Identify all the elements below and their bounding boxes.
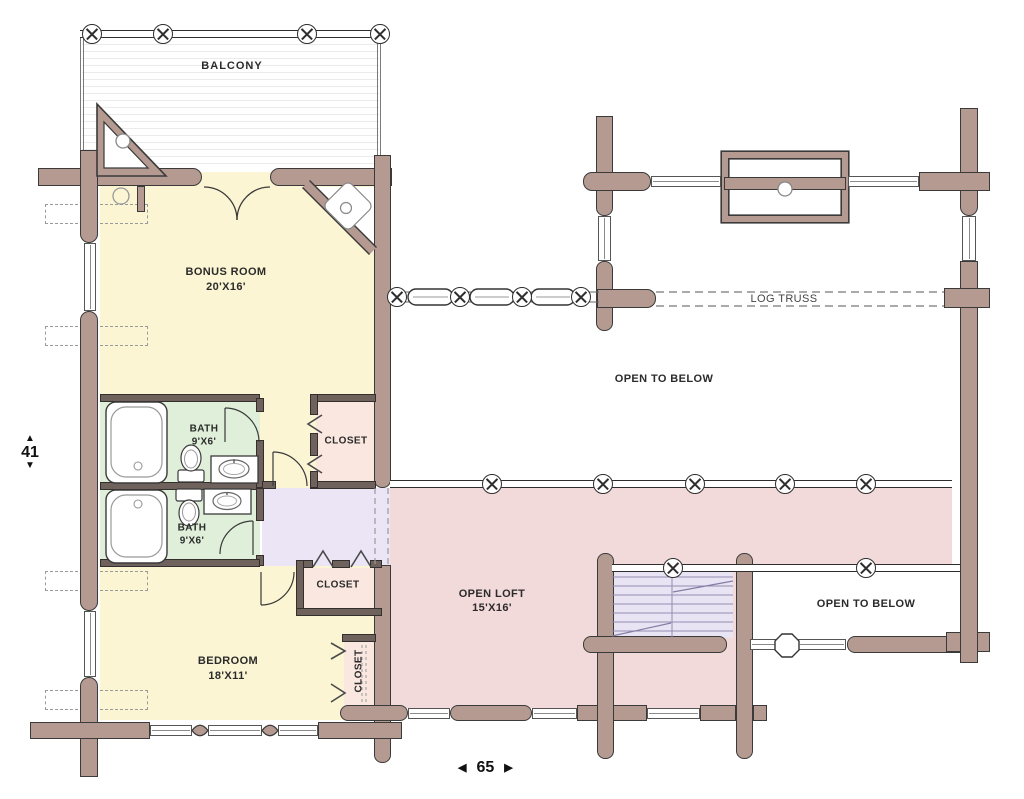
railing-post-icon [593, 474, 613, 494]
balcony-railing [80, 30, 382, 38]
railing-post-icon [775, 474, 795, 494]
wall-closet-upper-bottom [310, 481, 376, 489]
log-wall-loft-bottom [340, 705, 408, 721]
room-label-bath-upper: BATH [190, 424, 219, 435]
log-wall-right [960, 261, 978, 663]
railing-post-icon [370, 24, 390, 44]
log-wall-wing-right [374, 155, 391, 488]
wall-closet-lower-front [370, 560, 382, 568]
railing-post-icon [153, 24, 173, 44]
wall-hall-strip [262, 481, 276, 489]
wall-closet-upper-left [310, 394, 318, 415]
room-label-balcony: BALCONY [201, 60, 262, 72]
log-beam-top [919, 172, 990, 191]
room-label-bonus: BONUS ROOM [186, 266, 267, 278]
window [208, 725, 262, 736]
log-wall-bottom [30, 722, 150, 739]
room-label-open-loft: OPEN LOFT [459, 588, 526, 600]
room-size-bath-lower: 9'X6' [180, 536, 205, 547]
railing-post-icon [450, 287, 470, 307]
log-cross-truss-right [944, 288, 990, 308]
log-wall-loft-bottom [450, 705, 532, 721]
railing-post-icon [571, 287, 591, 307]
room-label-closet-side: CLOSET [354, 650, 365, 693]
wall-bath-lower-right [256, 488, 264, 521]
window [84, 611, 96, 677]
window [651, 176, 721, 187]
window [962, 216, 976, 261]
label-open-to-below-lower: OPEN TO BELOW [817, 598, 916, 610]
wall-closet-lower-bottom [296, 608, 382, 616]
log-wall-loft-bottom [700, 705, 736, 721]
railing-post-icon [663, 558, 683, 578]
railing-post-icon [387, 287, 407, 307]
dimension-height: ▲ 41 ▼ [15, 434, 45, 472]
log-post-stairs-left [597, 553, 614, 759]
wall-closet-side-top [342, 634, 376, 642]
window [150, 725, 192, 736]
window-wall-logs [391, 289, 599, 305]
room-label-bedroom: BEDROOM [198, 655, 258, 667]
wall-bonus-bath [100, 394, 260, 402]
log-beam-top [583, 172, 651, 191]
room-size-bedroom: 18'X11' [208, 670, 247, 682]
window [848, 176, 919, 187]
wall-closet-upper-left [310, 471, 318, 488]
railing-post-icon [685, 474, 705, 494]
label-open-to-below-upper: OPEN TO BELOW [615, 373, 714, 385]
arrow-up-icon: ▲ [15, 434, 45, 445]
window [750, 639, 778, 650]
railing-post-icon [512, 287, 532, 307]
open-loft-strip-floor [738, 482, 952, 568]
arrow-down-icon: ▼ [15, 461, 45, 472]
label-log-truss: LOG TRUSS [743, 293, 826, 305]
chimney-stub [137, 186, 145, 212]
log-post-stairs-right [736, 553, 753, 759]
window [598, 216, 611, 261]
wall-bedroom-top [100, 559, 260, 567]
window [532, 708, 577, 719]
railing-post-icon [856, 474, 876, 494]
room-label-closet-upper: CLOSET [325, 436, 368, 447]
arrow-right-icon: ▶ [504, 763, 512, 775]
log-wall-top-left [38, 168, 202, 186]
wall-bath-upper-right [256, 398, 264, 412]
log-wall-loft-bottom [753, 705, 767, 721]
balcony-side-rail [377, 38, 381, 155]
room-size-open-loft: 15'X16' [472, 602, 512, 614]
window [84, 243, 96, 311]
dimension-width-value: 65 [476, 760, 494, 777]
window [647, 708, 700, 719]
hall-strip-floor [260, 400, 316, 488]
window [408, 708, 450, 719]
wall-closet-upper-top [310, 394, 376, 402]
wall-closet-upper-left [310, 433, 318, 456]
balcony-side-rail [80, 38, 84, 150]
dimension-width: ◀ 65 ▶ [458, 760, 513, 777]
room-size-bath-upper: 9'X6' [192, 437, 217, 448]
dimension-height-value: 41 [15, 445, 45, 462]
wall-closet-lower-front [332, 560, 350, 568]
wall-bath-divider [100, 482, 262, 490]
arrow-left-icon: ◀ [458, 763, 466, 775]
window [278, 725, 318, 736]
balcony-floor [82, 38, 379, 170]
floor-plan: BALCONY BONUS ROOM 20'X16' BATH 9'X6' BA… [0, 0, 1024, 799]
railing-post-icon [856, 558, 876, 578]
room-label-bath-lower: BATH [178, 523, 207, 534]
railing-post-icon [82, 24, 102, 44]
log-beam-truss [597, 289, 656, 308]
log-beam-through-chimney [724, 177, 846, 190]
bath-upper-floor [100, 400, 260, 488]
railing-post-icon [482, 474, 502, 494]
log-wall-bottom [318, 722, 402, 739]
room-label-closet-lower: CLOSET [317, 580, 360, 591]
octagon-post [775, 634, 799, 657]
log-wall-right [960, 108, 978, 216]
stairs-floor [612, 568, 733, 638]
log-wall-lower-right [583, 636, 727, 653]
log-wall-left [80, 311, 98, 611]
log-post-truss-left [596, 116, 613, 216]
room-size-bonus: 20'X16' [206, 281, 246, 293]
window [798, 639, 846, 650]
hall-floor [262, 488, 390, 566]
log-wall-left [80, 150, 98, 243]
railing-post-icon [297, 24, 317, 44]
